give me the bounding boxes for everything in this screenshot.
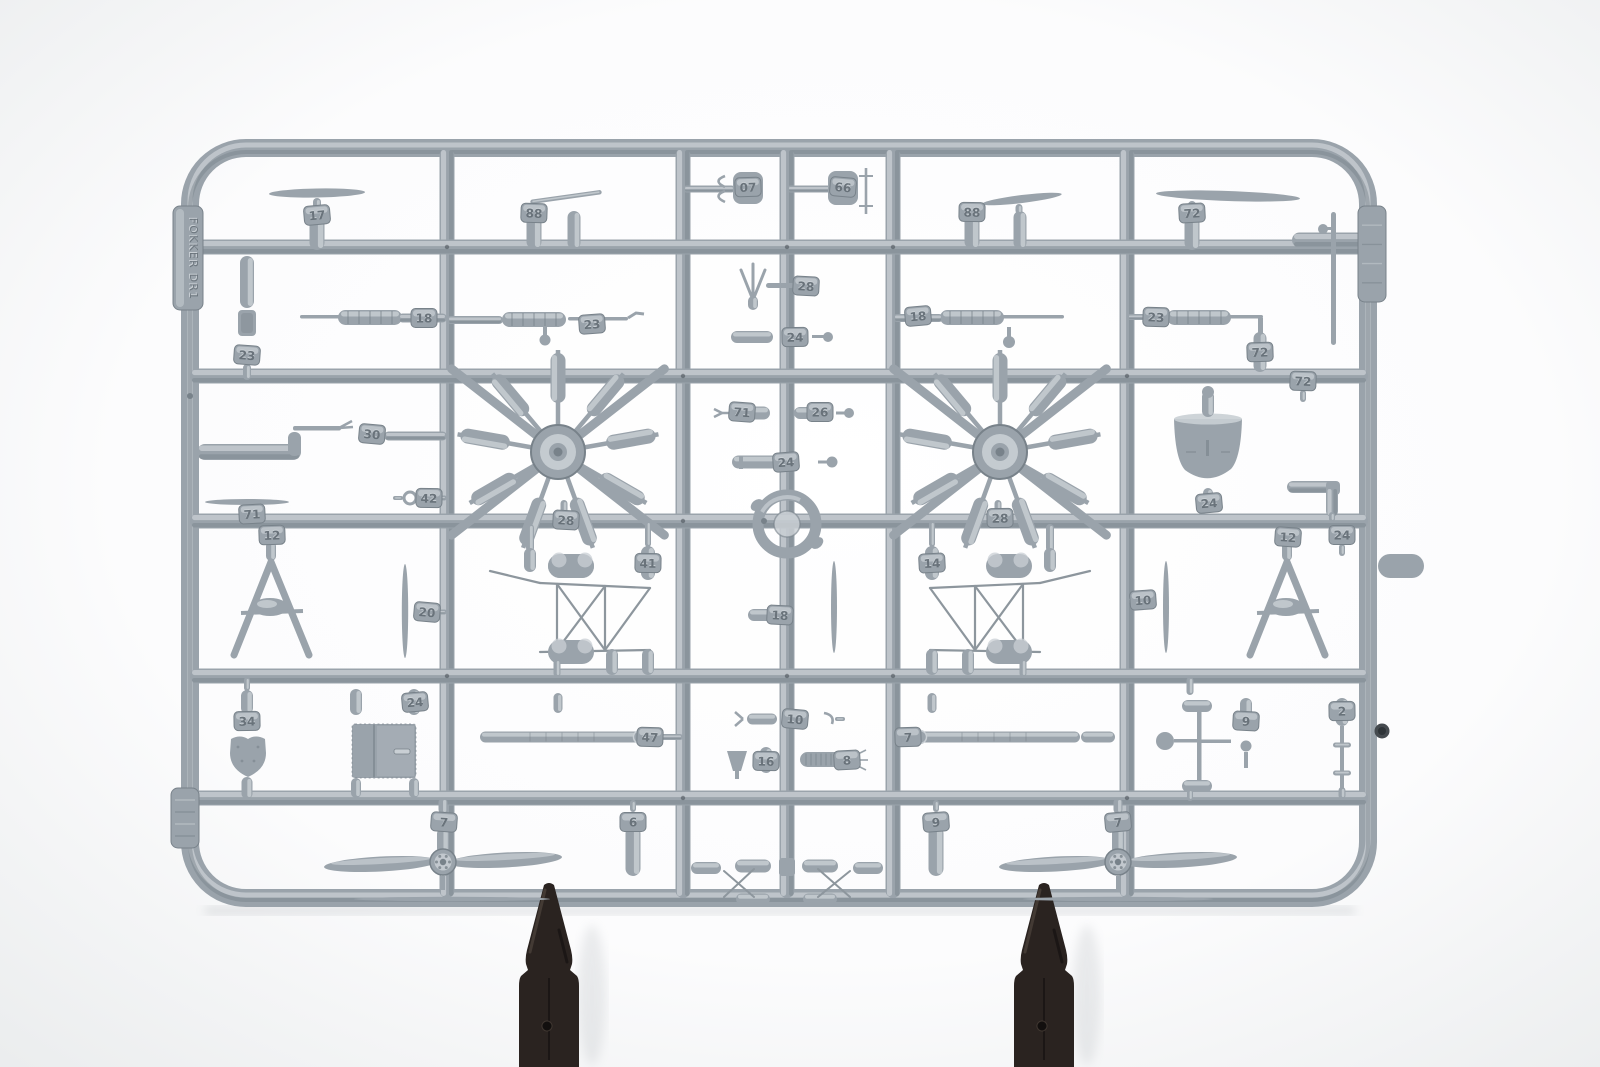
part-shape — [552, 355, 557, 401]
part-number-tag: 1010 — [1129, 590, 1156, 611]
part-shape — [1378, 727, 1386, 735]
embossed-tag-left-lower — [171, 788, 199, 848]
part-shape — [937, 828, 942, 874]
part-number-tag: 3434 — [234, 711, 260, 730]
part-number-text: 28 — [992, 511, 1009, 525]
part-shape — [540, 335, 551, 346]
part-shape — [1378, 554, 1424, 578]
small-cylinder-part — [243, 364, 251, 380]
part-number-tag: 99 — [922, 812, 949, 833]
part-shape — [789, 187, 829, 189]
part-number-text: 24 — [777, 455, 795, 470]
part-shape — [1358, 206, 1386, 302]
part-shape — [248, 258, 253, 306]
part-shape — [356, 691, 360, 713]
small-cylinder-part — [351, 778, 361, 798]
part-shape — [395, 497, 401, 498]
part-number-text: 9 — [1241, 714, 1250, 728]
part-shape — [257, 746, 260, 749]
part-shape — [1123, 861, 1126, 864]
small-cylinder-part — [1182, 780, 1212, 792]
part-number-text: 23 — [583, 317, 601, 332]
ejector-pin-mark — [681, 796, 685, 800]
part-shape — [804, 861, 836, 866]
small-cylinder-part — [1187, 789, 1193, 801]
part-shape — [1206, 440, 1209, 456]
part-shape — [440, 859, 446, 865]
part-shape — [648, 651, 652, 673]
small-cylinder-part — [642, 649, 654, 675]
part-number-text: 71 — [243, 507, 260, 522]
part-shape — [543, 327, 547, 336]
embossed-tag-right-edge — [1358, 206, 1386, 302]
ejector-pin-mark — [445, 245, 449, 249]
part-shape — [693, 863, 719, 867]
part-shape — [779, 858, 795, 876]
part-shape — [552, 553, 567, 568]
part-number-tag: 7272 — [1247, 342, 1274, 362]
part-shape — [1156, 732, 1174, 750]
small-cylinder-part — [242, 777, 253, 799]
part-shape — [996, 448, 1005, 457]
part-shape — [192, 370, 1366, 375]
small-cylinder-part — [480, 732, 648, 743]
part-number-text: 18 — [416, 312, 433, 326]
part-number-tag: 2828 — [987, 508, 1013, 527]
part-shape — [448, 861, 451, 864]
part-number-text: 72 — [1294, 374, 1311, 389]
wing-strut-blade-part — [831, 561, 837, 653]
part-shape — [685, 187, 733, 189]
fuel-tank-cylinder-part — [626, 826, 641, 876]
part-number-tag: 7171 — [728, 402, 755, 423]
part-number-tag: 1818 — [411, 309, 437, 328]
part-shape — [558, 695, 561, 711]
part-shape — [633, 802, 635, 810]
thin-rod-part — [354, 897, 550, 901]
part-shape — [766, 283, 794, 288]
small-cylinder-part — [1016, 204, 1023, 214]
part-number-text: 72 — [1251, 345, 1268, 360]
part-number-text: 88 — [964, 205, 981, 219]
small-cylinder-part — [526, 524, 534, 552]
part-shape — [414, 780, 418, 796]
part-shape — [435, 861, 438, 864]
part-number-text: 30 — [363, 427, 381, 442]
ejector-pin-mark — [1125, 374, 1129, 378]
part-shape — [1003, 336, 1015, 348]
small-cylinder-part — [409, 778, 419, 798]
part-shape — [936, 802, 938, 810]
part-number-text: 18 — [909, 309, 927, 324]
part-number-tag: 66 — [620, 813, 646, 832]
small-cylinder-part — [1339, 544, 1345, 556]
part-number-text: 24 — [787, 330, 804, 344]
ejector-pin-mark — [445, 674, 449, 678]
part-number-text: 23 — [1147, 310, 1164, 325]
part-shape — [449, 321, 501, 323]
part-number-text: 10 — [786, 712, 804, 727]
part-shape — [253, 760, 256, 763]
small-cylinder-part — [926, 649, 938, 675]
part-shape — [761, 518, 767, 524]
small-cylinder-part — [731, 331, 773, 343]
small-cylinder-part — [350, 689, 362, 715]
thin-rod-part — [1023, 897, 1213, 901]
ejector-pin-mark — [681, 519, 685, 523]
part-number-text: 17 — [308, 208, 326, 223]
sprue-knockout-pin-mark — [1375, 724, 1390, 739]
part-shape — [1273, 600, 1293, 608]
part-shape — [1115, 859, 1121, 865]
small-cylinder-part — [912, 732, 1080, 743]
part-number-tag: 2424 — [1195, 492, 1223, 513]
part-shape — [1294, 234, 1366, 239]
part-shape — [199, 446, 299, 451]
part-number-text: 6 — [629, 816, 637, 830]
part-number-text: 88 — [525, 206, 542, 221]
part-number-text: 41 — [640, 556, 657, 570]
part-shape — [176, 209, 184, 307]
part-shape — [662, 737, 681, 739]
part-shape — [247, 692, 251, 712]
small-cylinder-part — [962, 649, 974, 675]
part-shape — [1335, 744, 1349, 746]
part-number-text: 42 — [421, 491, 438, 505]
part-shape — [968, 651, 972, 673]
part-shape — [482, 733, 646, 737]
sprue-shadow — [205, 906, 1355, 915]
small-cylinder-part — [933, 800, 939, 812]
small-cylinder-part — [1333, 771, 1351, 776]
small-cylinder-part — [1329, 512, 1335, 522]
part-shape — [818, 461, 830, 464]
part-shape — [1333, 489, 1337, 515]
part-shape — [1019, 206, 1022, 212]
part-number-tag: 8888 — [521, 203, 548, 223]
part-shape — [1083, 733, 1113, 737]
part-shape — [438, 866, 441, 869]
part-shape — [530, 526, 533, 550]
part-number-tag: 1616 — [753, 751, 779, 770]
part-shape — [1197, 706, 1202, 786]
small-cylinder-part — [630, 800, 636, 812]
part-number-text: 8 — [842, 753, 851, 767]
part-shape — [288, 432, 301, 456]
small-cylinder-part — [691, 862, 721, 874]
part-shape — [557, 661, 560, 675]
part-shape — [1340, 726, 1344, 788]
small-cylinder-part — [244, 677, 250, 691]
part-shape — [394, 749, 410, 754]
small-cylinder-part — [1014, 211, 1027, 249]
part-number-tag: 2828 — [553, 510, 580, 530]
embossed-brand-tag-fokker-dr1: FOKKER DR1FOKKER DR1 — [173, 206, 203, 310]
fuel-tank-cylinder-part — [929, 826, 944, 876]
part-number-tag: 77 — [895, 727, 922, 747]
part-shape — [932, 523, 934, 545]
part-number-text: 12 — [263, 528, 280, 543]
part-shape — [1202, 386, 1214, 398]
part-shape — [1229, 315, 1263, 319]
part-shape — [1120, 866, 1123, 869]
part-number-text: 7 — [1113, 815, 1123, 830]
part-number-text: 28 — [797, 279, 814, 294]
part-number-text: 7 — [439, 815, 448, 830]
small-cylinder-part — [554, 693, 563, 713]
part-number-tag: 4747 — [637, 727, 664, 747]
part-number-text: 23 — [238, 348, 256, 363]
part-number-tag: 1818 — [904, 305, 932, 326]
sprue-runner-horizontal — [190, 369, 1368, 384]
part-shape — [386, 437, 445, 440]
small-cylinder-part — [240, 256, 254, 308]
part-number-text: 47 — [641, 730, 658, 745]
part-shape — [753, 298, 757, 308]
part-shape — [192, 378, 1366, 383]
part-shape — [445, 866, 448, 869]
small-cylinder-part — [393, 496, 403, 500]
part-shape — [648, 523, 650, 545]
part-shape — [1174, 739, 1198, 743]
part-number-text: 2 — [1338, 705, 1347, 719]
part-shape — [445, 855, 448, 858]
part-shape — [1303, 392, 1305, 400]
part-shape — [171, 788, 199, 848]
engine-cylinder-part — [993, 353, 1008, 403]
part-number-tag: 2323 — [578, 314, 605, 335]
part-number-tag: 2020 — [413, 601, 441, 622]
part-shape — [554, 448, 563, 457]
part-number-tag: 2626 — [807, 403, 833, 422]
part-shape — [739, 456, 743, 469]
part-shape — [1118, 800, 1121, 812]
engine-cylinder-part — [551, 353, 566, 403]
part-shape — [685, 189, 733, 191]
part-shape — [733, 332, 771, 336]
part-number-tag: 2323 — [1143, 307, 1170, 327]
part-shape — [530, 550, 534, 570]
part-number-tag: 2828 — [793, 276, 820, 296]
part-shape — [988, 553, 1003, 568]
part-shape — [205, 499, 289, 505]
part-shape — [1184, 701, 1210, 705]
part-shape — [1014, 639, 1029, 654]
small-cylinder-part — [1300, 390, 1306, 402]
part-shape — [1332, 514, 1334, 520]
ejector-pin-mark — [785, 245, 789, 249]
part-shape — [855, 863, 881, 867]
part-shape — [241, 760, 244, 763]
part-shape — [241, 313, 253, 333]
part-shape — [237, 746, 240, 749]
part-number-tag: 2424 — [1329, 526, 1355, 545]
small-cylinder-part — [1114, 798, 1123, 814]
sprue-runner-horizontal — [197, 444, 301, 460]
axle-stub-part — [1292, 233, 1368, 248]
clip-shadow — [1073, 925, 1101, 1065]
propeller-gate-pin — [1116, 876, 1120, 890]
part-number-text: 20 — [418, 605, 436, 620]
part-number-text: 72 — [1183, 206, 1200, 221]
sprue-scene: 1717888807076666888872722323181823232828… — [0, 0, 1600, 1067]
clip-shadow — [578, 925, 606, 1065]
small-cylinder-part — [241, 690, 253, 714]
part-shape — [1326, 227, 1334, 230]
part-shape — [634, 828, 639, 874]
wing-strut-blade-part — [402, 564, 408, 658]
part-number-text: 12 — [1279, 530, 1297, 545]
small-cylinder-part — [853, 862, 883, 874]
wing-strut-blade-part — [1163, 561, 1169, 653]
part-number-text: 34 — [239, 714, 256, 728]
ejector-pin-mark — [681, 374, 685, 378]
brand-emboss-text: FOKKER DR1 — [187, 218, 200, 301]
small-cylinder-part — [524, 548, 536, 572]
sprue-runner-horizontal — [787, 186, 831, 193]
part-shape — [1328, 489, 1332, 515]
ejector-pin-mark — [891, 245, 895, 249]
part-number-tag: 0707 — [735, 177, 762, 197]
part-number-tag: 2424 — [772, 452, 799, 473]
part-shape — [812, 335, 826, 338]
part-shape — [339, 427, 353, 428]
part-shape — [1335, 772, 1349, 774]
small-cylinder-part — [554, 659, 561, 677]
part-number-text: 18 — [771, 608, 788, 623]
part-number-tag: 7272 — [1290, 371, 1317, 391]
part-shape — [293, 426, 341, 431]
small-cylinder-part — [645, 521, 651, 547]
part-number-text: 28 — [557, 513, 574, 528]
part-shape — [199, 454, 299, 459]
part-shape — [449, 318, 501, 321]
part-shape — [789, 189, 829, 191]
small-cylinder-part — [1333, 743, 1351, 748]
part-shape — [247, 679, 249, 689]
part-shape — [1023, 661, 1026, 675]
part-number-text: 7 — [904, 730, 913, 744]
part-number-tag: 2323 — [233, 345, 260, 366]
photo-of-model-kit-sprue: 1717888807076666888872722323181823232828… — [0, 0, 1600, 1067]
part-shape — [438, 855, 441, 858]
part-shape — [1331, 212, 1336, 345]
small-cylinder-part — [1020, 659, 1027, 677]
small-cylinder-part — [747, 714, 777, 725]
part-shape — [1184, 781, 1210, 785]
part-number-text: 24 — [406, 695, 424, 710]
part-number-tag: 1717 — [303, 204, 331, 225]
part-shape — [914, 733, 1078, 737]
part-shape — [443, 800, 446, 812]
part-shape — [1190, 679, 1193, 693]
part-number-tag: 8888 — [959, 202, 985, 221]
part-shape — [552, 639, 567, 654]
small-cylinder-part — [1339, 787, 1346, 799]
part-shape — [1241, 741, 1252, 752]
part-number-text: 07 — [739, 180, 756, 195]
part-number-tag: 2424 — [401, 691, 429, 712]
small-cylinder-part — [568, 211, 581, 249]
sprue-runner-horizontal — [384, 432, 447, 441]
part-shape — [1113, 866, 1116, 869]
sprue-runner-horizontal — [683, 186, 735, 193]
part-shape — [1244, 752, 1248, 768]
part-number-tag: 7272 — [1179, 203, 1206, 223]
frame-hole — [187, 393, 193, 399]
part-shape — [837, 718, 843, 719]
part-shape — [575, 213, 580, 247]
small-cylinder-part — [928, 693, 937, 713]
propeller-gate-pin — [441, 876, 445, 890]
part-number-tag: 1212 — [259, 525, 286, 545]
part-shape — [1294, 242, 1366, 247]
part-shape — [1113, 855, 1116, 858]
part-shape — [356, 780, 360, 796]
part-number-tag: 77 — [430, 812, 457, 833]
part-number-text: 24 — [1200, 496, 1218, 511]
part-shape — [1007, 327, 1011, 337]
part-number-tag: 4242 — [416, 488, 442, 507]
part-number-tag: 4141 — [635, 553, 661, 572]
part-number-tag: 1818 — [767, 605, 794, 625]
part-number-tag: 22 — [1329, 701, 1355, 720]
part-shape — [257, 600, 277, 608]
part-shape — [1201, 740, 1231, 744]
skid-rail-part — [480, 731, 648, 744]
part-shape — [932, 651, 936, 673]
part-shape — [612, 651, 616, 673]
part-shape — [988, 639, 1003, 654]
part-shape — [1021, 213, 1026, 247]
part-shape — [300, 315, 340, 319]
small-cylinder-part — [1187, 677, 1194, 695]
part-number-text: 71 — [733, 405, 751, 420]
ejector-pin-mark — [891, 674, 895, 678]
part-number-tag: 3030 — [358, 423, 386, 444]
part-number-text: 26 — [812, 406, 829, 420]
part-number-tag: 7171 — [239, 504, 266, 524]
skid-rail-part — [912, 731, 1080, 744]
part-shape — [578, 553, 593, 568]
part-shape — [1120, 855, 1123, 858]
part-number-text: 16 — [758, 754, 775, 768]
part-shape — [1342, 546, 1344, 554]
part-number-tag: 1010 — [781, 708, 809, 729]
part-shape — [1002, 315, 1064, 319]
part-shape — [836, 412, 846, 415]
part-shape — [247, 779, 251, 797]
part-shape — [1110, 861, 1113, 864]
ejector-pin-mark — [1125, 796, 1129, 800]
part-shape — [994, 355, 999, 401]
small-cylinder-part — [929, 521, 935, 547]
small-cylinder-part — [1044, 548, 1056, 572]
part-shape — [578, 639, 593, 654]
small-cylinder-part — [835, 717, 845, 721]
part-number-text: 14 — [923, 556, 940, 571]
part-shape — [271, 543, 275, 559]
part-number-tag: 88 — [834, 750, 861, 770]
ejector-pin-mark — [785, 674, 789, 678]
part-shape — [1190, 791, 1192, 799]
part-number-text: 66 — [834, 180, 852, 195]
part-number-tag: 99 — [1233, 711, 1260, 731]
small-cylinder-part — [1046, 524, 1054, 552]
small-cylinder-part — [606, 649, 618, 675]
part-shape — [1014, 553, 1029, 568]
part-shape — [247, 366, 250, 378]
